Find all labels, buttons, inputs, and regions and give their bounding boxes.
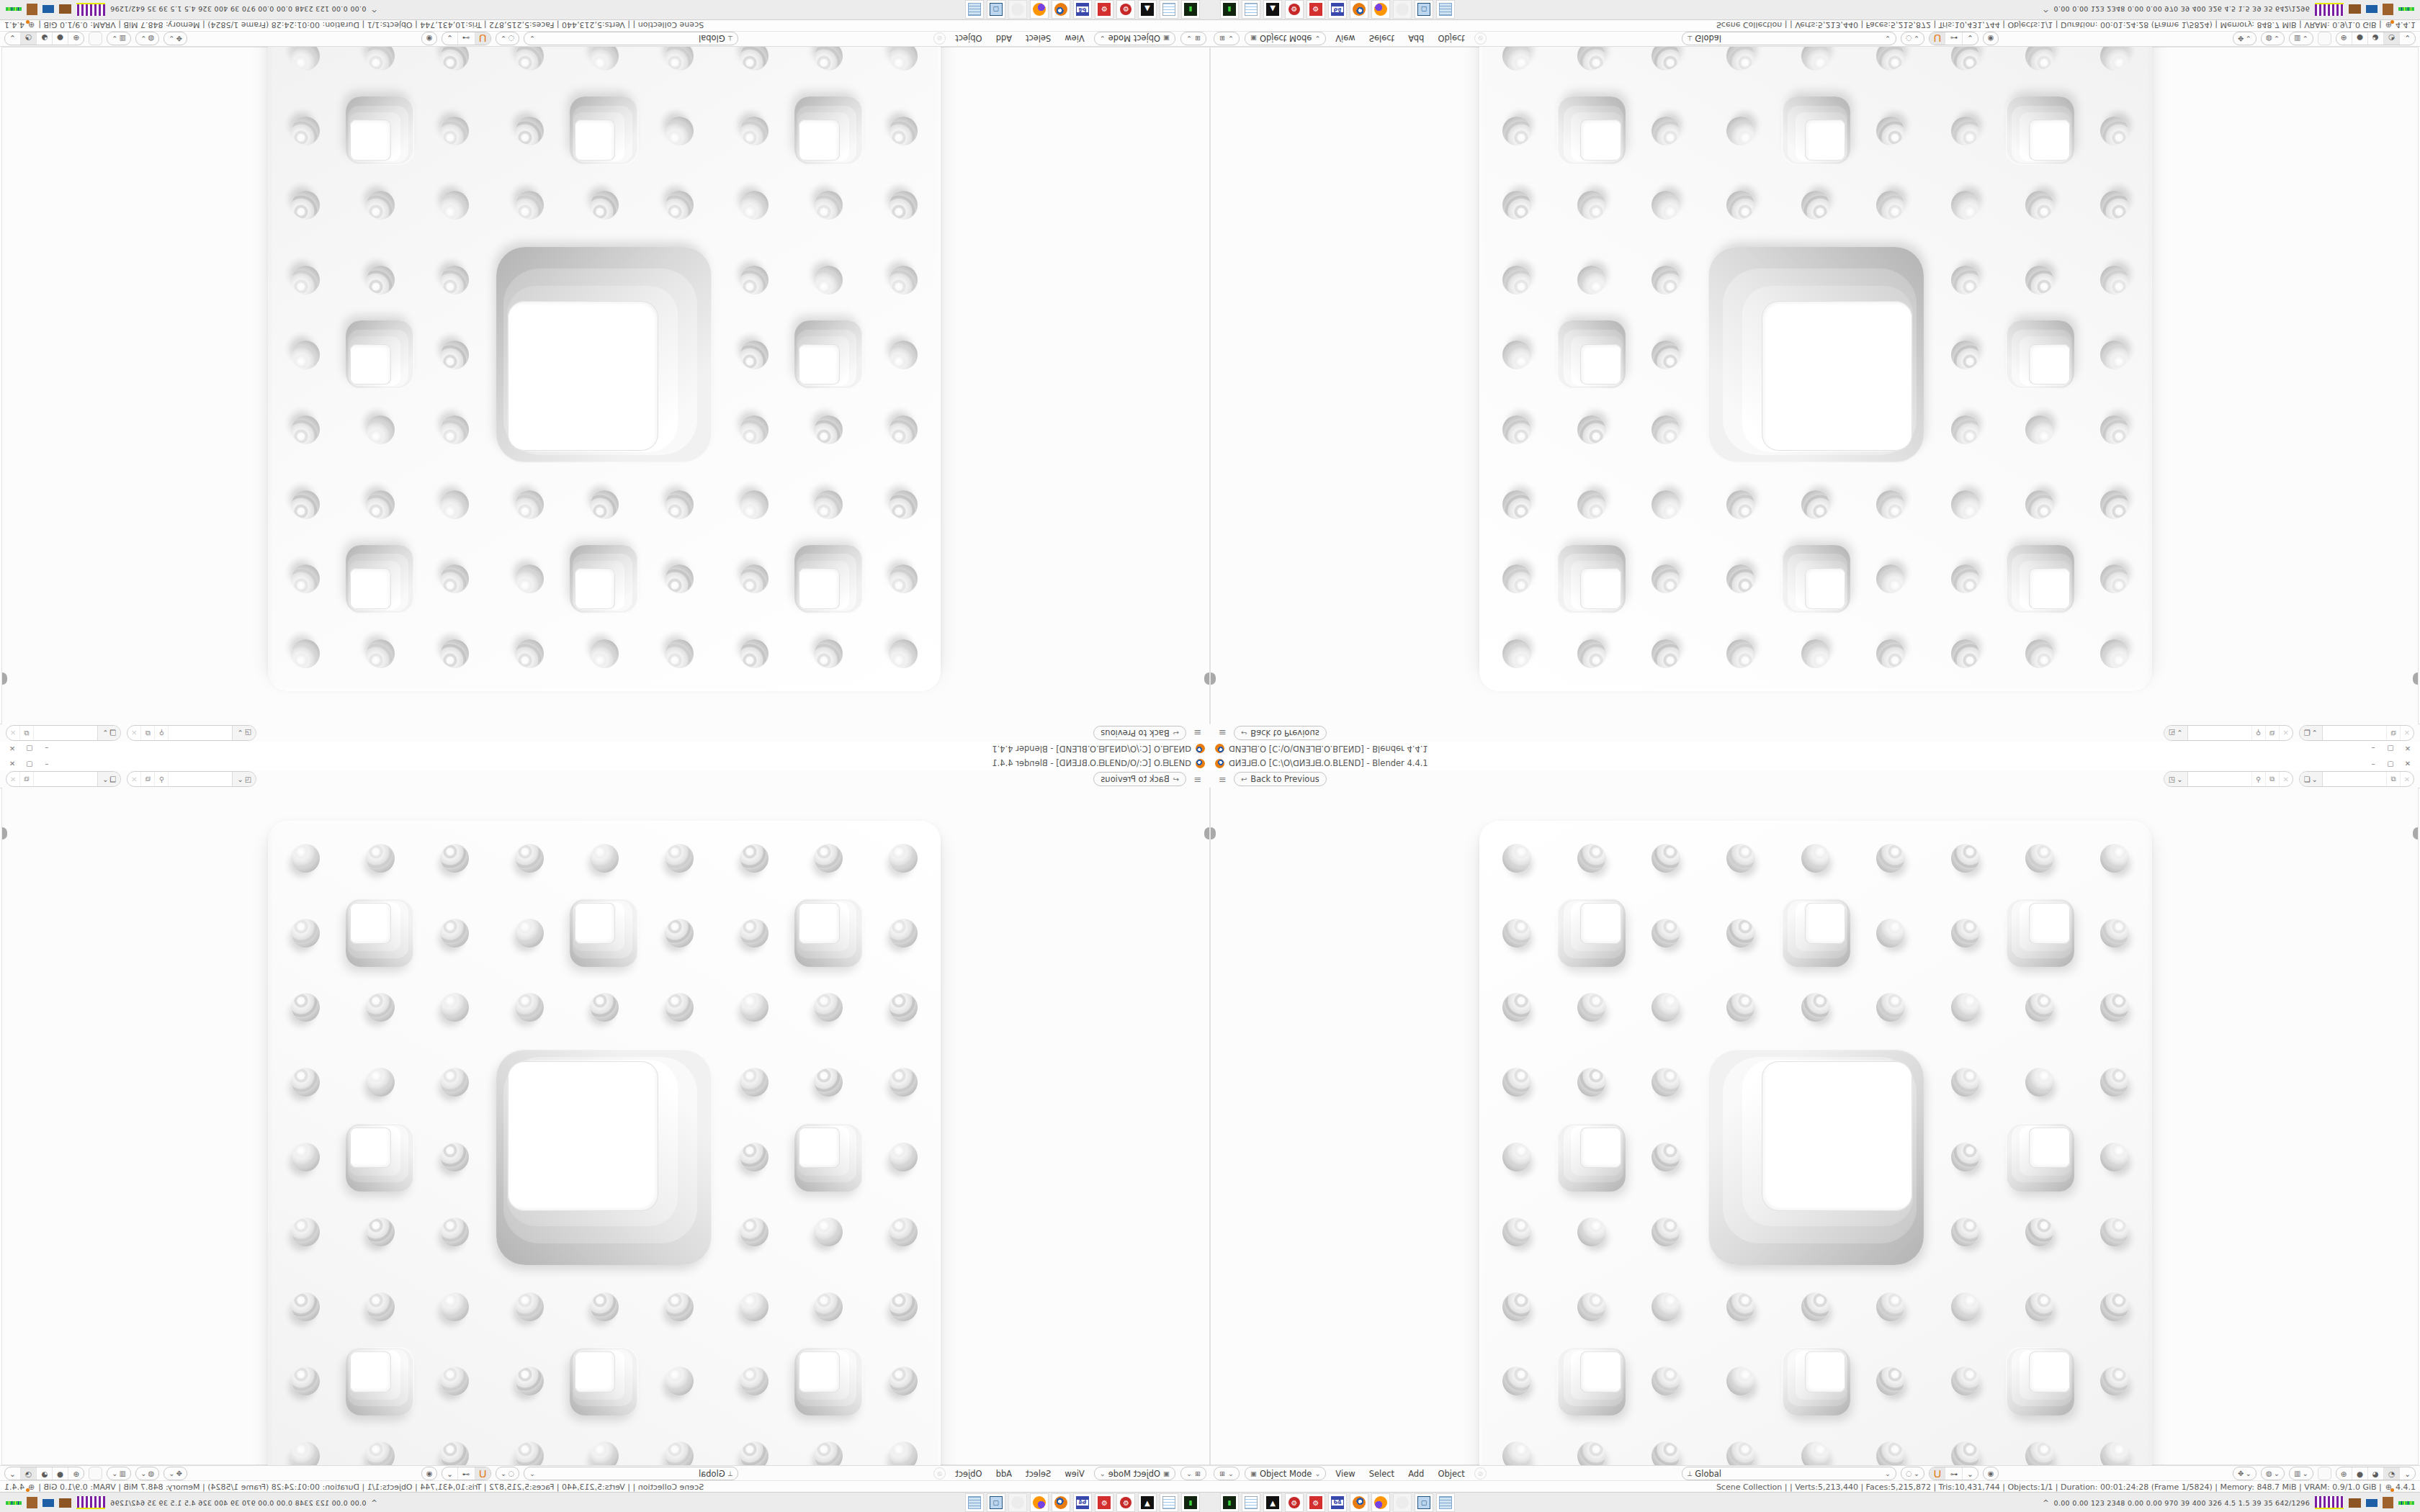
scene-stats: Scene Collection | | Verts:5,213,440 | F…: [1716, 21, 2382, 30]
window-controls: – ▢ ✕: [2365, 758, 2420, 769]
taskbar-icon-blender[interactable]: [1350, 1493, 1368, 1512]
magnet-icon: ⋃: [1934, 1469, 1940, 1478]
fractal-sphere: [291, 1292, 320, 1321]
shading-solid-button[interactable]: ●: [52, 1467, 68, 1480]
menu-object[interactable]: Object: [955, 1469, 982, 1479]
close-button[interactable]: ✕: [4, 744, 20, 755]
fractal-hole: [1557, 1123, 1626, 1192]
caret-down-icon: ⌄: [2177, 729, 2182, 737]
shading-rendered-button[interactable]: ◔: [20, 1467, 36, 1480]
xray-icon: ▥: [2294, 1470, 2300, 1477]
tray-expand-icon[interactable]: ^: [371, 1499, 377, 1507]
pin-icon[interactable]: ⚲: [155, 726, 169, 740]
fractal-sphere: [665, 919, 694, 948]
taskbar-icon-firefox[interactable]: [1371, 0, 1390, 19]
fractal-sphere: [515, 1292, 544, 1321]
viewport-header-left: ⊞ ⌄ ▣ Object Mode ⌄ View Select Add Obje…: [1214, 1467, 1487, 1480]
copy-icon[interactable]: ⧉: [2386, 726, 2400, 740]
taskbar-icon-gear-badge[interactable]: ⚙: [1285, 1493, 1304, 1512]
shading-material-button[interactable]: ◕: [36, 1467, 52, 1480]
fractal-sphere: [740, 1367, 768, 1395]
view-layer-icon: ❏: [109, 775, 116, 783]
fractal-sphere: [1652, 490, 1680, 519]
extra-toggle[interactable]: [89, 32, 102, 45]
shading-settings-button[interactable]: ⌄: [2400, 32, 2415, 45]
tray-sparkline-chart: [2315, 1496, 2344, 1509]
fractal-sphere: [515, 919, 544, 948]
shading-wireframe-button[interactable]: ⊕: [2336, 1467, 2352, 1480]
extra-toggle[interactable]: [2318, 1467, 2331, 1480]
extra-toggle[interactable]: [2318, 32, 2331, 45]
taskbar-icon-notepad[interactable]: [1242, 0, 1260, 19]
overlays-dropdown[interactable]: ◍ ⌄: [2261, 1467, 2285, 1480]
taskbar-icon-floppy[interactable]: 64: [1073, 1493, 1092, 1512]
gizmo-icon: ✥: [176, 1470, 182, 1477]
fractal-sphere: [2100, 1292, 2129, 1321]
topbar-menu-icon[interactable]: ≡: [1219, 728, 1227, 739]
fractal-sphere: [814, 639, 843, 668]
wireframe-icon: ⊕: [73, 35, 79, 43]
shading-material-button[interactable]: ◕: [2368, 32, 2384, 45]
fractal-sphere: [665, 993, 694, 1022]
close-button[interactable]: ✕: [4, 758, 20, 769]
menu-add[interactable]: Add: [996, 34, 1012, 44]
proportional-edit-button[interactable]: ◌ ⌄: [1901, 32, 1924, 45]
fractal-sphere: [740, 266, 768, 294]
shading-material-button[interactable]: ◕: [36, 32, 52, 45]
inkscape-icon: ▲: [1266, 3, 1279, 16]
close-button[interactable]: ✕: [2400, 758, 2416, 769]
tray-expand-icon[interactable]: ^: [371, 6, 377, 14]
viewport-3d[interactable]: [1, 788, 1210, 1465]
floppy-icon: 64: [1331, 3, 1344, 16]
ghost-icon: [1396, 3, 1409, 16]
pin-icon[interactable]: ⚲: [155, 772, 169, 786]
scene-type-button[interactable]: ◳⌄: [2164, 726, 2188, 740]
taskbar-icon-inkscape[interactable]: ▲: [1263, 0, 1282, 19]
topbar-menu-icon[interactable]: ≡: [1219, 774, 1227, 785]
restore-button[interactable]: ▢: [2383, 744, 2398, 755]
view-layer-type-button[interactable]: ❏⌄: [2300, 726, 2323, 740]
taskbar-icon-gear-badge[interactable]: ⚙: [1116, 0, 1135, 19]
snap-settings-button[interactable]: ⌄: [442, 1467, 457, 1480]
fractal-sphere: [590, 993, 619, 1022]
back-to-previous-button[interactable]: ↩ Back to Previous: [1234, 772, 1327, 786]
taskbar-icon-ghost[interactable]: [1008, 1493, 1027, 1512]
minimize-button[interactable]: –: [2365, 758, 2381, 769]
shading-solid-button[interactable]: ●: [52, 32, 68, 45]
caret-down-icon: ⌄: [140, 1470, 146, 1477]
copy-icon[interactable]: ⧉: [20, 726, 34, 740]
xray-toggle[interactable]: ▥ ⌄: [107, 1467, 131, 1480]
taskbar-icon-gear-badge[interactable]: ⚙: [1116, 1493, 1135, 1512]
fractal-hole: [570, 899, 639, 967]
shading-mode-switch: ⊕ ● ◕ ◔ ⌄: [4, 32, 84, 45]
falloff-button[interactable]: ◉: [421, 1467, 438, 1480]
snap-mode-button[interactable]: ⊶: [1945, 32, 1963, 45]
scene-name-field[interactable]: [169, 772, 232, 786]
fractal-sphere: [1577, 993, 1606, 1022]
fractal-sphere: [440, 117, 469, 145]
copy-icon[interactable]: ⧉: [141, 726, 155, 740]
snap-mode-button[interactable]: ⊶: [457, 32, 475, 45]
taskbar-icon-notepad[interactable]: [1160, 0, 1178, 19]
mode-dropdown[interactable]: ▣ Object Mode ⌄: [1245, 1467, 1326, 1480]
taskbar-icon-ghost[interactable]: [1008, 0, 1027, 19]
quadrant-bottom-left: ᗡИƎ⅃ᗺ.O [C:\O\ᗡИƎ⅃ᗺ.O.BLEND] - Blender 4…: [0, 756, 1210, 1512]
fractal-hole: [1782, 1347, 1850, 1416]
fractal-sphere: [291, 117, 320, 145]
mode-dropdown[interactable]: ▣ Object Mode ⌄: [1245, 32, 1326, 45]
falloff-button[interactable]: ◉: [1983, 32, 1999, 45]
transform-orientation-dropdown[interactable]: ⟂ Global ⌄: [1682, 32, 1896, 45]
fractal-sphere: [291, 191, 320, 220]
fractal-sphere: [814, 191, 843, 220]
shading-solid-button[interactable]: ●: [2352, 1467, 2368, 1480]
area-resize-handle-left[interactable]: [1211, 827, 1216, 840]
snap-settings-button[interactable]: ⌄: [1963, 1467, 1978, 1480]
scene-name-field[interactable]: [2188, 772, 2251, 786]
proportional-edit-button[interactable]: ◌ ⌄: [1901, 1467, 1924, 1480]
disabled-tool-icon: ⊘: [933, 1467, 946, 1480]
overlays-icon: ◍: [2266, 35, 2272, 42]
fractal-sphere: [1652, 1068, 1680, 1097]
status-bar: Scene Collection | | Verts:5,213,440 | F…: [0, 19, 1210, 32]
copy-icon[interactable]: ⧉: [20, 772, 34, 786]
caret-down-icon: ⌄: [112, 35, 117, 42]
taskbar-icon-calc[interactable]: [965, 1493, 984, 1512]
fractal-sphere: [2100, 490, 2129, 519]
menu-add[interactable]: Add: [996, 1469, 1012, 1479]
view-layer-name-field[interactable]: [2323, 726, 2386, 740]
gizmo-dropdown[interactable]: ✥ ⌄: [2233, 1467, 2257, 1480]
menu-add[interactable]: Add: [1408, 1469, 1424, 1479]
transform-orientation-dropdown[interactable]: ⟂ Global ⌄: [524, 32, 738, 45]
taskbar-icon-blender[interactable]: [1052, 1493, 1070, 1512]
xray-toggle[interactable]: ▥ ⌄: [2289, 1467, 2313, 1480]
menu-select[interactable]: Select: [1026, 1469, 1051, 1479]
fractal-hole: [346, 545, 414, 613]
taskbar-icon-firefox[interactable]: [1030, 0, 1049, 19]
network-globe-icon: ⊕: [2385, 21, 2392, 30]
magnet-icon: ⋃: [480, 1469, 486, 1478]
taskbar-icon-calc[interactable]: [1436, 1493, 1455, 1512]
fractal-sphere: [1726, 117, 1755, 145]
taskbar-icon-ghost[interactable]: [1393, 0, 1412, 19]
area-resize-handle-right[interactable]: [2413, 672, 2418, 685]
xray-toggle[interactable]: ▥ ⌄: [2289, 32, 2313, 45]
taskbar-icon-monitor[interactable]: ▢: [1415, 0, 1433, 19]
extra-toggle[interactable]: [89, 1467, 102, 1480]
copy-icon[interactable]: ⧉: [2265, 772, 2279, 786]
system-tray: ^ 0.00 0.00 123 2348 0.00 0.00 970 39 40…: [0, 3, 377, 16]
fractal-sphere: [1951, 341, 1980, 369]
taskbar-icon-calc[interactable]: [1436, 0, 1455, 19]
system-tray: ^ 0.00 0.00 123 2348 0.00 0.00 970 39 40…: [0, 1496, 377, 1509]
blender-logo-icon: [1215, 759, 1224, 768]
taskbar-icon-inkscape[interactable]: ▲: [1263, 1493, 1282, 1512]
unlink-icon[interactable]: ✕: [6, 726, 20, 740]
gizmo-dropdown[interactable]: ✥ ⌄: [163, 1467, 187, 1480]
fractal-sphere: [1502, 490, 1531, 519]
scene-selector: ◳⌄ ⚲ ⧉ ✕: [127, 725, 256, 741]
shading-rendered-button[interactable]: ◔: [20, 32, 36, 45]
topbar-menu-icon[interactable]: ≡: [1193, 774, 1201, 785]
view-layer-type-button[interactable]: ❏⌄: [2300, 772, 2323, 786]
shading-rendered-button[interactable]: ◔: [2384, 32, 2400, 45]
fractal-sphere: [1951, 415, 1980, 444]
shading-settings-button[interactable]: ⌄: [5, 1467, 20, 1480]
taskbar-icon-floppy[interactable]: 64: [1328, 1493, 1347, 1512]
viewport-header: ⊞ ⌄ ▣ Object Mode ⌄ View Select Add Obje…: [0, 31, 1210, 47]
back-label: Back to Previous: [1101, 774, 1169, 784]
viewport-3d[interactable]: [1210, 788, 2419, 1465]
taskbar-icon-blender[interactable]: [1052, 0, 1070, 19]
viewport-header-right: ✥ ⌄ ◍ ⌄ ▥ ⌄ ⊕ ● ◕: [2233, 32, 2420, 45]
taskbar-icon-gear-badge[interactable]: ⚙: [1285, 0, 1304, 19]
fractal-sphere: [889, 266, 918, 294]
taskbar-icon-calc[interactable]: [965, 0, 984, 19]
taskbar-icon-inkscape[interactable]: ▲: [1138, 0, 1157, 19]
taskbar-icon-console[interactable]: ▮: [1220, 0, 1239, 19]
tray-monitor-numbers: 0.00 0.00 123 2348 0.00 0.00 970 39 400 …: [110, 6, 366, 14]
fractal-hole: [1557, 96, 1626, 165]
snap-toggle[interactable]: ⋃: [1930, 32, 1945, 45]
taskbar-icon-monitor[interactable]: ▢: [1415, 1493, 1433, 1512]
caret-down-icon: ⌄: [2246, 1470, 2251, 1477]
fractal-sphere: [740, 1218, 768, 1246]
unlink-icon[interactable]: ✕: [127, 772, 141, 786]
shading-wireframe-button[interactable]: ⊕: [68, 32, 84, 45]
fractal-sphere: [1951, 266, 1980, 294]
scene-type-button[interactable]: ◳⌄: [232, 726, 256, 740]
scene-name-field[interactable]: [2188, 726, 2251, 740]
taskbar-icon-firefox[interactable]: [1030, 1493, 1049, 1512]
floppy-icon: 64: [1076, 3, 1089, 16]
mode-dropdown[interactable]: ▣ Object Mode ⌄: [1094, 1467, 1175, 1480]
transform-orientation-dropdown[interactable]: ⟂ Global ⌄: [524, 1467, 738, 1480]
taskbar-icon-notepad[interactable]: [1160, 1493, 1178, 1512]
fractal-sphere: [1876, 993, 1905, 1022]
back-to-previous-button[interactable]: ↩ Back to Previous: [1093, 772, 1186, 786]
fractal-sphere: [1876, 1367, 1905, 1395]
snap-mode-button[interactable]: ⊶: [1945, 1467, 1963, 1480]
tray-meter-brown-2: [2383, 4, 2393, 15]
restore-button[interactable]: ▢: [22, 758, 37, 769]
scene-name-field[interactable]: [169, 726, 232, 740]
view-layer-name-field[interactable]: [34, 772, 97, 786]
fractal-sphere: [590, 490, 619, 519]
taskbar-icon-gear-square[interactable]: ⚙: [1307, 1493, 1325, 1512]
editor-type-button[interactable]: ⊞ ⌄: [1214, 32, 1240, 45]
fractal-sphere: [1876, 639, 1905, 668]
viewport-3d[interactable]: [1210, 47, 2419, 724]
view-layer-name-field[interactable]: [2323, 772, 2386, 786]
blender-icon: [1054, 1496, 1067, 1509]
unlink-icon[interactable]: ✕: [6, 772, 20, 786]
window-title: ᗡИƎ⅃ᗺ.O [C:\O\ᗡИƎ⅃ᗺ.O.BLEND] - Blender 4…: [1229, 758, 1428, 768]
menu-select[interactable]: Select: [1369, 1469, 1394, 1479]
blender-version: 4.4.1: [0, 21, 24, 30]
back-label: Back to Previous: [1250, 774, 1319, 784]
minimize-button[interactable]: –: [2365, 744, 2381, 755]
tray-expand-icon[interactable]: ^: [2043, 1499, 2048, 1507]
pin-icon[interactable]: ⚲: [2251, 726, 2265, 740]
taskbar-icon-floppy[interactable]: 64: [1328, 0, 1347, 19]
caret-down-icon: ⌄: [1885, 1470, 1891, 1477]
shading-wireframe-button[interactable]: ⊕: [68, 1467, 84, 1480]
editor-type-button[interactable]: ⊞ ⌄: [1180, 32, 1206, 45]
taskbar-icon-floppy[interactable]: 64: [1073, 0, 1092, 19]
taskbar-icon-firefox[interactable]: [1371, 1493, 1390, 1512]
snap-settings-button[interactable]: ⌄: [1963, 32, 1978, 45]
viewport-3d[interactable]: [1, 47, 1210, 724]
shading-settings-button[interactable]: ⌄: [2400, 1467, 2415, 1480]
fractal-sphere: [291, 1367, 320, 1395]
view-layer-type-button[interactable]: ❏⌄: [97, 726, 120, 740]
mode-dropdown[interactable]: ▣ Object Mode ⌄: [1094, 32, 1175, 45]
scene-type-button[interactable]: ◳⌄: [232, 772, 256, 786]
fractal-hole: [570, 545, 639, 613]
menu-view[interactable]: View: [1065, 34, 1084, 44]
overlays-dropdown[interactable]: ◍ ⌄: [135, 32, 159, 45]
back-label: Back to Previous: [1250, 728, 1319, 738]
taskbar-icon-gear-square[interactable]: ⚙: [1307, 0, 1325, 19]
topbar-menu-icon[interactable]: ≡: [1193, 728, 1201, 739]
shading-settings-button[interactable]: ⌄: [5, 32, 20, 45]
area-resize-handle-right[interactable]: [2, 827, 7, 840]
editor-type-button[interactable]: ⊞ ⌄: [1180, 1467, 1206, 1480]
snap-toggle[interactable]: ⋃: [475, 1467, 490, 1480]
scene-type-button[interactable]: ◳⌄: [2164, 772, 2188, 786]
taskbar-icon-console[interactable]: ▮: [1181, 1493, 1200, 1512]
view-layer-name-field[interactable]: [34, 726, 97, 740]
restore-button[interactable]: ▢: [2383, 758, 2398, 769]
taskbar-icon-console[interactable]: ▮: [1220, 1493, 1239, 1512]
proportional-edit-button[interactable]: ◌ ⌄: [496, 1467, 519, 1480]
pin-icon[interactable]: ⚲: [2251, 772, 2265, 786]
menu-object[interactable]: Object: [1438, 1469, 1464, 1479]
taskbar: ▮▲⚙⚙64▢ ^ 0.00 0.00 123 2348 0.00 0.00 9…: [0, 1492, 1210, 1512]
console-icon: ▮: [1223, 1496, 1236, 1509]
unlink-icon[interactable]: ✕: [2279, 772, 2293, 786]
unlink-icon[interactable]: ✕: [2400, 772, 2414, 786]
blender-logo-icon: [1196, 759, 1205, 768]
fractal-sphere: [515, 993, 544, 1022]
fractal-sphere: [889, 341, 918, 369]
area-resize-handle-right[interactable]: [2413, 827, 2418, 840]
view-layer-type-button[interactable]: ❏⌄: [97, 772, 120, 786]
proportional-edit-button[interactable]: ◌ ⌄: [496, 32, 519, 45]
area-resize-handle-left[interactable]: [1204, 827, 1209, 840]
wireframe-icon: ⊕: [2341, 1470, 2347, 1478]
fractal-sphere: [1951, 191, 1980, 220]
viewport-header-right: ✥ ⌄ ◍ ⌄ ▥ ⌄ ⊕ ● ◕: [2233, 1467, 2420, 1480]
snap-toggle[interactable]: ⋃: [1930, 1467, 1945, 1480]
area-resize-handle-left[interactable]: [1211, 672, 1216, 685]
back-to-previous-button[interactable]: ↩ Back to Previous: [1093, 726, 1186, 740]
fractal-sphere: [1652, 266, 1680, 294]
fractal-sphere: [1726, 1292, 1755, 1321]
snap-settings-button[interactable]: ⌄: [442, 32, 457, 45]
fractal-sphere: [291, 1068, 320, 1097]
copy-icon[interactable]: ⧉: [2265, 726, 2279, 740]
calc-icon: [968, 1496, 981, 1509]
taskbar-icon-gear-square[interactable]: ⚙: [1095, 1493, 1113, 1512]
falloff-button[interactable]: ◉: [421, 32, 438, 45]
xray-toggle[interactable]: ▥ ⌄: [107, 32, 131, 45]
scene-stats: Scene Collection | | Verts:5,213,440 | F…: [1716, 1482, 2382, 1492]
taskbar-icon-monitor[interactable]: ▢: [987, 0, 1005, 19]
close-button[interactable]: ✕: [2400, 744, 2416, 755]
copy-icon[interactable]: ⧉: [2386, 772, 2400, 786]
menu-view[interactable]: View: [1065, 1469, 1084, 1479]
snap-control: ⋃ ⊶ ⌄: [442, 1467, 491, 1480]
gizmo-dropdown[interactable]: ✥ ⌄: [163, 32, 187, 45]
taskbar-icon-inkscape[interactable]: ▲: [1138, 1493, 1157, 1512]
shading-rendered-button[interactable]: ◔: [2384, 1467, 2400, 1480]
area-resize-handle-right[interactable]: [2, 672, 7, 685]
minimize-button[interactable]: –: [39, 744, 55, 755]
menu-add[interactable]: Add: [1408, 34, 1424, 44]
taskbar-icons: ▮▲⚙⚙64▢: [965, 0, 1200, 19]
unlink-icon[interactable]: ✕: [2279, 726, 2293, 740]
caret-down-icon: ⌄: [501, 35, 506, 42]
caret-down-icon: ⌄: [140, 35, 146, 42]
transform-orientation-dropdown[interactable]: ⟂ Global ⌄: [1682, 1467, 1896, 1480]
minimize-button[interactable]: –: [39, 758, 55, 769]
taskbar-icon-ghost[interactable]: [1393, 1493, 1412, 1512]
taskbar-icon-gear-square[interactable]: ⚙: [1095, 0, 1113, 19]
unlink-icon[interactable]: ✕: [127, 726, 141, 740]
menu-view[interactable]: View: [1335, 34, 1355, 44]
rendered-icon: ◔: [25, 1470, 32, 1478]
caret-down-icon: ⌄: [1914, 1470, 1919, 1477]
taskbar-icon-console[interactable]: ▮: [1181, 0, 1200, 19]
copy-icon[interactable]: ⧉: [141, 772, 155, 786]
scene-stats: Scene Collection | | Verts:5,213,440 | F…: [38, 1482, 704, 1492]
tray-meter-brown-2: [2383, 1497, 2393, 1508]
rendered-icon: ◔: [2388, 35, 2395, 43]
fractal-sphere: [590, 1292, 619, 1321]
shading-wireframe-button[interactable]: ⊕: [2336, 32, 2352, 45]
unlink-icon[interactable]: ✕: [2400, 726, 2414, 740]
tray-expand-icon[interactable]: ^: [2043, 6, 2048, 14]
falloff-button[interactable]: ◉: [1983, 1467, 1999, 1480]
snap-toggle[interactable]: ⋃: [475, 32, 490, 45]
shading-material-button[interactable]: ◕: [2368, 1467, 2384, 1480]
overlays-dropdown[interactable]: ◍ ⌄: [2261, 32, 2285, 45]
taskbar-icon-notepad[interactable]: [1242, 1493, 1260, 1512]
menu-select[interactable]: Select: [1026, 34, 1051, 44]
menu-select[interactable]: Select: [1369, 34, 1394, 44]
restore-button[interactable]: ▢: [22, 744, 37, 755]
fractal-hole: [2006, 321, 2074, 390]
menu-view[interactable]: View: [1335, 1469, 1355, 1479]
shading-solid-button[interactable]: ●: [2352, 32, 2368, 45]
taskbar-icon-monitor[interactable]: ▢: [987, 1493, 1005, 1512]
taskbar-icon-blender[interactable]: [1350, 0, 1368, 19]
editor-type-button[interactable]: ⊞ ⌄: [1214, 1467, 1240, 1480]
menu-object[interactable]: Object: [955, 34, 982, 44]
overlays-dropdown[interactable]: ◍ ⌄: [135, 1467, 159, 1480]
area-resize-handle-left[interactable]: [1204, 672, 1209, 685]
snap-mode-button[interactable]: ⊶: [457, 1467, 475, 1480]
back-to-previous-button[interactable]: ↩ Back to Previous: [1234, 726, 1327, 740]
fractal-sphere: [1951, 1143, 1980, 1171]
gizmo-dropdown[interactable]: ✥ ⌄: [2233, 32, 2257, 45]
menu-object[interactable]: Object: [1438, 34, 1464, 44]
